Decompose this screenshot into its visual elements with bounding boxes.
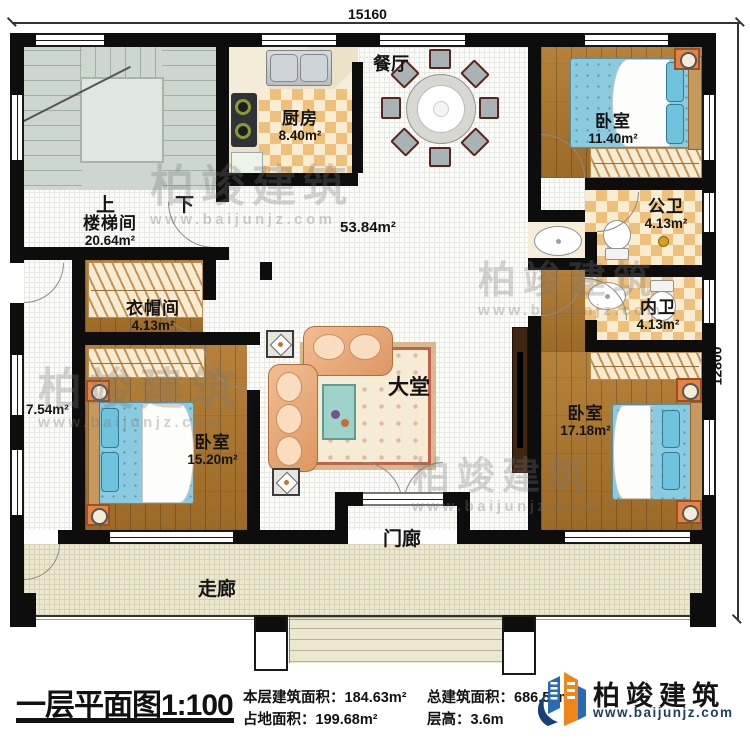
window-right-bedroom1 <box>702 95 716 160</box>
stair-landing <box>80 77 164 163</box>
wall-stair-kitchen <box>216 33 229 190</box>
wall-pubbath-left <box>585 232 597 265</box>
room-label-dining: 餐厅 <box>373 50 409 76</box>
pillow <box>101 452 119 492</box>
title-underline <box>16 718 234 723</box>
stair-treads-left <box>24 50 82 188</box>
window-top-stair <box>36 33 104 47</box>
headboard <box>88 400 100 506</box>
cloakroom-name: 衣帽间 <box>107 300 199 319</box>
dimension-top-value: 15160 <box>344 6 391 22</box>
headboard <box>688 56 702 150</box>
wall-stub-stair-door <box>216 186 229 202</box>
entry-threshold <box>363 492 443 506</box>
stat-floor-height: 层高：3.6m <box>427 708 504 729</box>
window-top-dining <box>380 33 465 47</box>
wall-cloak-right <box>203 260 216 300</box>
lamp-table <box>272 468 300 496</box>
sofa-cushion <box>313 334 345 360</box>
door-opening-corridor-veranda <box>24 530 58 544</box>
lamp-table <box>266 330 294 358</box>
veranda-edge <box>10 615 716 620</box>
pillow <box>666 104 684 144</box>
wall-hall-niche-top-stub <box>528 178 541 210</box>
wall-bottom-c <box>470 530 565 544</box>
wall-niche-bottom <box>528 258 585 270</box>
dining-chair <box>429 147 451 167</box>
sofa-cushion <box>276 404 302 434</box>
dining-chair <box>479 97 499 119</box>
wall-pubbath-bottom <box>585 265 702 277</box>
wall-entry-stub-left <box>335 492 348 544</box>
kitchen-area: 8.40m² <box>255 129 345 144</box>
stairwell-name: 楼梯间 <box>60 215 160 234</box>
room-label-bedroom3: 卧室 17.18m² <box>538 405 633 439</box>
corner-post-left <box>10 593 36 627</box>
wall-kitchen-dining <box>352 62 363 173</box>
public-bath-area: 4.13m² <box>626 217 706 232</box>
window-left-hall <box>10 355 24 415</box>
nightstand <box>676 378 702 402</box>
pillow <box>662 452 680 490</box>
window-top-kitchen <box>262 33 336 47</box>
room-label-bedroom1: 卧室 11.40m² <box>568 113 658 147</box>
vanity-sink <box>534 226 582 256</box>
wall-hall-jog <box>260 262 272 280</box>
stair-down-label: 下 <box>175 190 194 217</box>
wall-entry-stub-right <box>457 492 470 544</box>
room-label-porch: 门廊 <box>383 524 421 551</box>
hall-area-label: 53.84m² <box>340 219 396 236</box>
kitchen-sink <box>266 50 332 86</box>
corner-post-right <box>690 593 716 627</box>
wall-bottom-b <box>233 530 335 544</box>
room-label-inner-bath: 内卫 4.13m² <box>618 299 698 333</box>
room-label-kitchen: 厨房 8.40m² <box>255 110 345 144</box>
pillow <box>101 408 119 448</box>
nightstand <box>86 504 110 526</box>
dining-chair <box>429 49 451 69</box>
room-label-bedroom2: 卧室 15.20m² <box>165 434 260 468</box>
room-label-cloakroom: 衣帽间 4.13m² <box>107 300 199 334</box>
dimension-line-right <box>737 24 739 620</box>
porch-column-left <box>254 615 288 671</box>
wall-kitchen-bottom <box>216 173 358 186</box>
kitchen-stove <box>231 93 257 147</box>
wall-corridor-rooms <box>72 247 85 530</box>
veranda-floor <box>24 544 702 617</box>
pillow <box>662 410 680 448</box>
inner-bath-area: 4.13m² <box>618 318 698 333</box>
inner-bath-name: 内卫 <box>618 299 698 318</box>
stat-footprint-area: 占地面积：199.68m² <box>243 708 378 729</box>
bedroom2-name: 卧室 <box>165 434 260 453</box>
stair-treads-top <box>80 47 164 77</box>
stair-up-label: 上 <box>96 190 115 217</box>
window-bottom-bedroom3 <box>565 530 690 544</box>
wall-niche-top <box>528 210 585 222</box>
kitchen-name: 厨房 <box>255 110 345 129</box>
public-bath-name: 公卫 <box>626 198 706 217</box>
room-label-veranda: 走廊 <box>198 574 236 601</box>
sofa-cushion <box>276 372 302 402</box>
nightstand <box>86 380 110 402</box>
bedroom1-name: 卧室 <box>568 113 658 132</box>
room-label-stairwell: 楼梯间 20.64m² <box>60 215 160 249</box>
porch-column-right <box>502 615 536 675</box>
room-label-public-bath: 公卫 4.13m² <box>626 198 706 232</box>
bedroom1-area: 11.40m² <box>568 132 658 147</box>
stat-floor-area: 本层建筑面积：184.63m² <box>243 686 407 707</box>
window-right-bedroom3 <box>702 420 716 495</box>
wall-cloak-bedroom <box>72 332 260 345</box>
cloakroom-area: 4.13m² <box>107 319 199 334</box>
window-top-bedroom1 <box>585 33 668 47</box>
wardrobe-bedroom2 <box>88 348 205 378</box>
tv-cabinet <box>512 327 528 473</box>
porch-steps <box>289 617 503 663</box>
brand-website: www.baijunjz.com <box>593 705 734 720</box>
room-label-hall: 大堂 <box>388 371 430 401</box>
dimension-line-top <box>12 22 740 24</box>
floor-plan-page: 楼梯间 20.64m² 上 下 厨房 8.40m² 餐厅 53.84m² 大堂 … <box>0 0 750 739</box>
window-bottom-bedroom2 <box>110 530 233 544</box>
stair-treads-right <box>162 50 216 188</box>
toilet-tank-public-bath <box>605 248 629 260</box>
sofa-cushion <box>349 334 381 360</box>
bedroom2-area: 15.20m² <box>165 453 260 468</box>
door-opening-left <box>10 263 24 303</box>
dining-chair <box>381 97 401 119</box>
brand-logo-icon <box>534 668 590 732</box>
nightstand <box>674 48 700 70</box>
coffee-table <box>322 384 356 440</box>
wall-bottom-a <box>58 530 110 544</box>
sofa-cushion <box>276 436 302 466</box>
dining-table <box>406 74 476 144</box>
wall-innerbath-left <box>585 320 597 340</box>
bedroom3-area: 17.18m² <box>538 424 633 439</box>
wall-innerbath-bottom <box>585 340 702 352</box>
wall-stair-south <box>24 247 216 260</box>
window-left-stair <box>10 95 24 160</box>
nightstand <box>676 500 702 524</box>
wall-bottom-d <box>690 530 702 544</box>
wall-bedroom1-left <box>528 33 541 178</box>
window-right-innerbath <box>702 280 716 323</box>
window-left-lower <box>10 450 24 515</box>
bath-pull-light <box>658 236 669 247</box>
wall-stub-cloak-corner <box>216 247 229 260</box>
stairwell-area: 20.64m² <box>60 234 160 249</box>
bedroom3-name: 卧室 <box>538 405 633 424</box>
wall-bedroom1-bottom <box>585 178 702 190</box>
wardrobe-bedroom1 <box>590 148 702 178</box>
side-hall-area-label: 7.54m² <box>26 402 69 417</box>
wardrobe-bedroom3 <box>590 352 702 380</box>
